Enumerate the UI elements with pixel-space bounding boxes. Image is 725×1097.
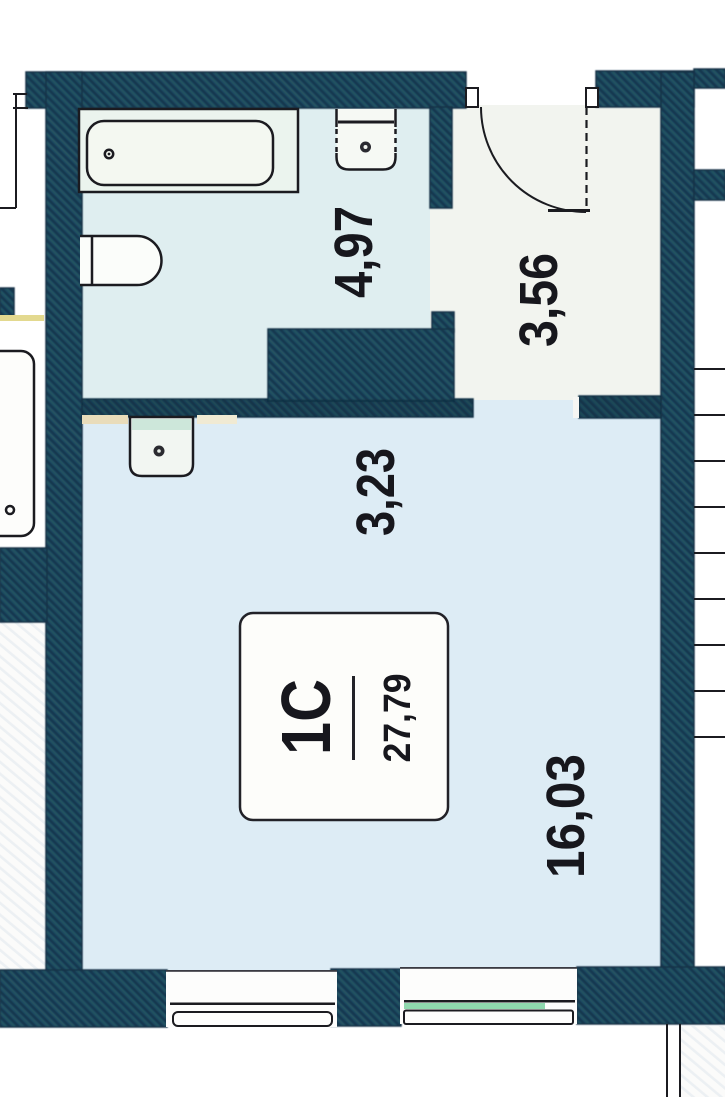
svg-text:16,03: 16,03	[536, 754, 596, 878]
svg-text:3,56: 3,56	[509, 253, 569, 347]
svg-text:1C: 1C	[267, 679, 345, 755]
svg-text:27,79: 27,79	[377, 674, 419, 763]
svg-text:3,23: 3,23	[346, 448, 406, 536]
svg-text:4,97: 4,97	[324, 206, 384, 298]
